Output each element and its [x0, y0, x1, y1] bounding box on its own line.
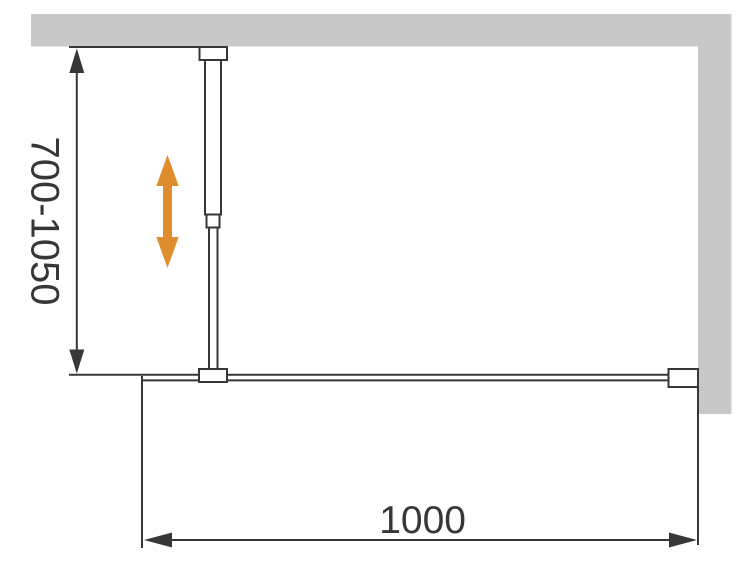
svg-text:700-1050: 700-1050: [23, 136, 67, 305]
svg-text:1000: 1000: [379, 499, 466, 542]
